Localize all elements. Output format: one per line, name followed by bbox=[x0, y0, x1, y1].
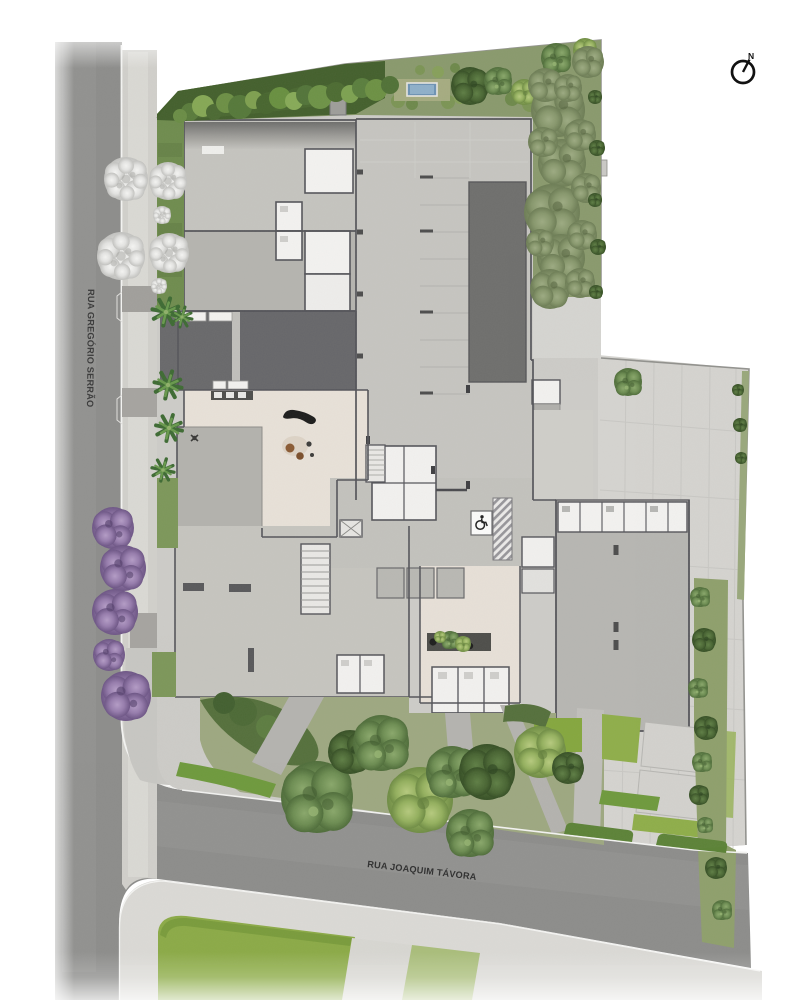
svg-text:N: N bbox=[748, 51, 754, 61]
